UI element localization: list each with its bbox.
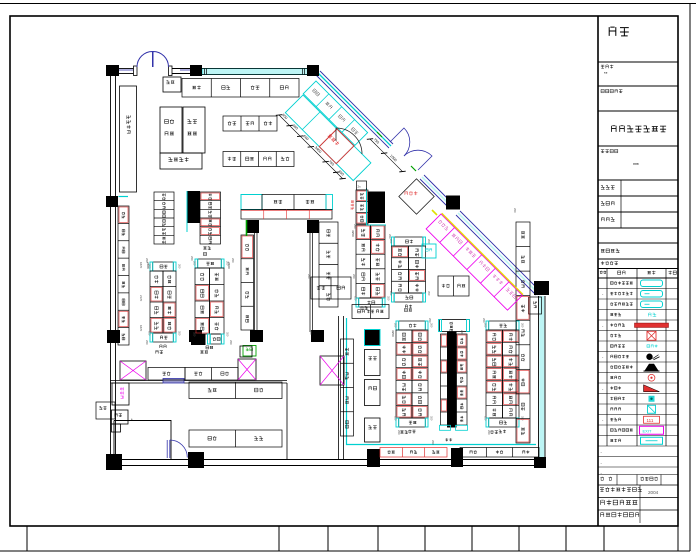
svg-text:260: 260: [178, 264, 182, 269]
svg-text:1870: 1870: [139, 262, 143, 269]
svg-text:2x: 2x: [358, 185, 362, 189]
svg-text:350: 350: [387, 296, 391, 301]
svg-text:350: 350: [394, 416, 398, 421]
svg-text:3950: 3950: [391, 330, 395, 337]
svg-text:2600: 2600: [146, 262, 150, 269]
svg-text:260: 260: [193, 261, 197, 266]
svg-text:260: 260: [231, 258, 235, 263]
svg-text:260: 260: [431, 440, 435, 445]
svg-text:260: 260: [145, 340, 149, 345]
svg-text:260: 260: [430, 323, 434, 328]
svg-text:350: 350: [354, 296, 358, 301]
svg-text:350: 350: [484, 416, 488, 421]
svg-text:260: 260: [397, 430, 401, 435]
svg-text:260: 260: [389, 239, 393, 244]
svg-text:260: 260: [145, 258, 149, 263]
svg-text:350: 350: [389, 291, 393, 296]
svg-text:350: 350: [427, 291, 431, 296]
svg-text:260: 260: [307, 274, 311, 279]
svg-text:260: 260: [229, 340, 233, 345]
svg-text:350: 350: [430, 416, 434, 421]
svg-text:260: 260: [388, 234, 392, 239]
svg-text:260: 260: [521, 323, 525, 328]
svg-text:260: 260: [513, 208, 517, 213]
svg-text:350: 350: [178, 331, 182, 336]
svg-text:260: 260: [487, 430, 491, 435]
svg-text:260: 260: [352, 274, 356, 279]
svg-text:260: 260: [484, 323, 488, 328]
svg-text:350: 350: [193, 332, 197, 337]
svg-text:EXIT: EXIT: [643, 428, 652, 433]
svg-text:2170: 2170: [139, 295, 143, 302]
svg-text:111: 111: [647, 418, 654, 423]
svg-text:350: 350: [226, 332, 230, 337]
svg-text:2004: 2004: [648, 490, 659, 495]
svg-text:260: 260: [460, 330, 464, 335]
svg-text:**: **: [604, 71, 608, 76]
svg-text:260: 260: [482, 318, 486, 323]
svg-text:260: 260: [353, 224, 357, 229]
svg-text:260: 260: [394, 323, 398, 328]
svg-text:***: ***: [633, 163, 639, 169]
svg-text:2600: 2600: [227, 262, 231, 269]
svg-text:350: 350: [148, 331, 152, 336]
svg-text:260: 260: [427, 239, 431, 244]
svg-text:260: 260: [428, 318, 432, 323]
svg-text:260: 260: [309, 330, 313, 335]
svg-text:3950: 3950: [351, 230, 355, 237]
svg-text:260: 260: [190, 256, 194, 261]
svg-text:1870: 1870: [139, 325, 143, 332]
